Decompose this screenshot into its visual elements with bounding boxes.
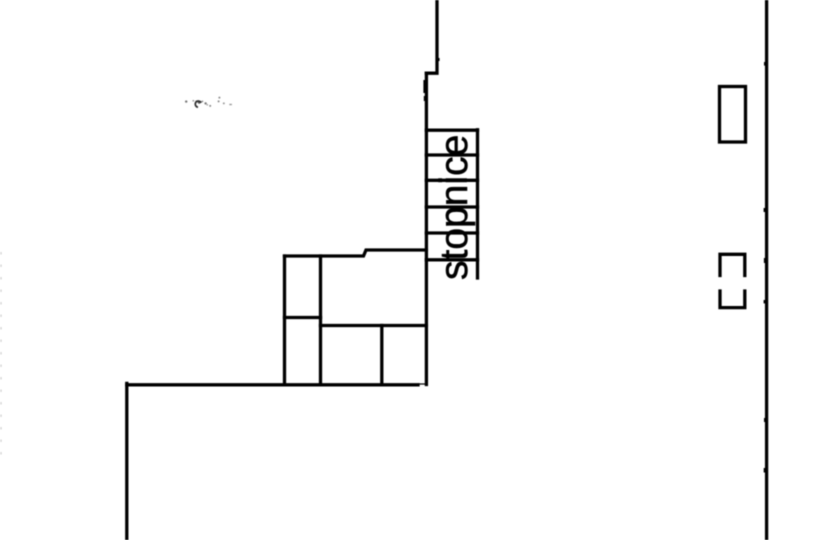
svg-text:stopnice: stopnice — [433, 135, 476, 280]
